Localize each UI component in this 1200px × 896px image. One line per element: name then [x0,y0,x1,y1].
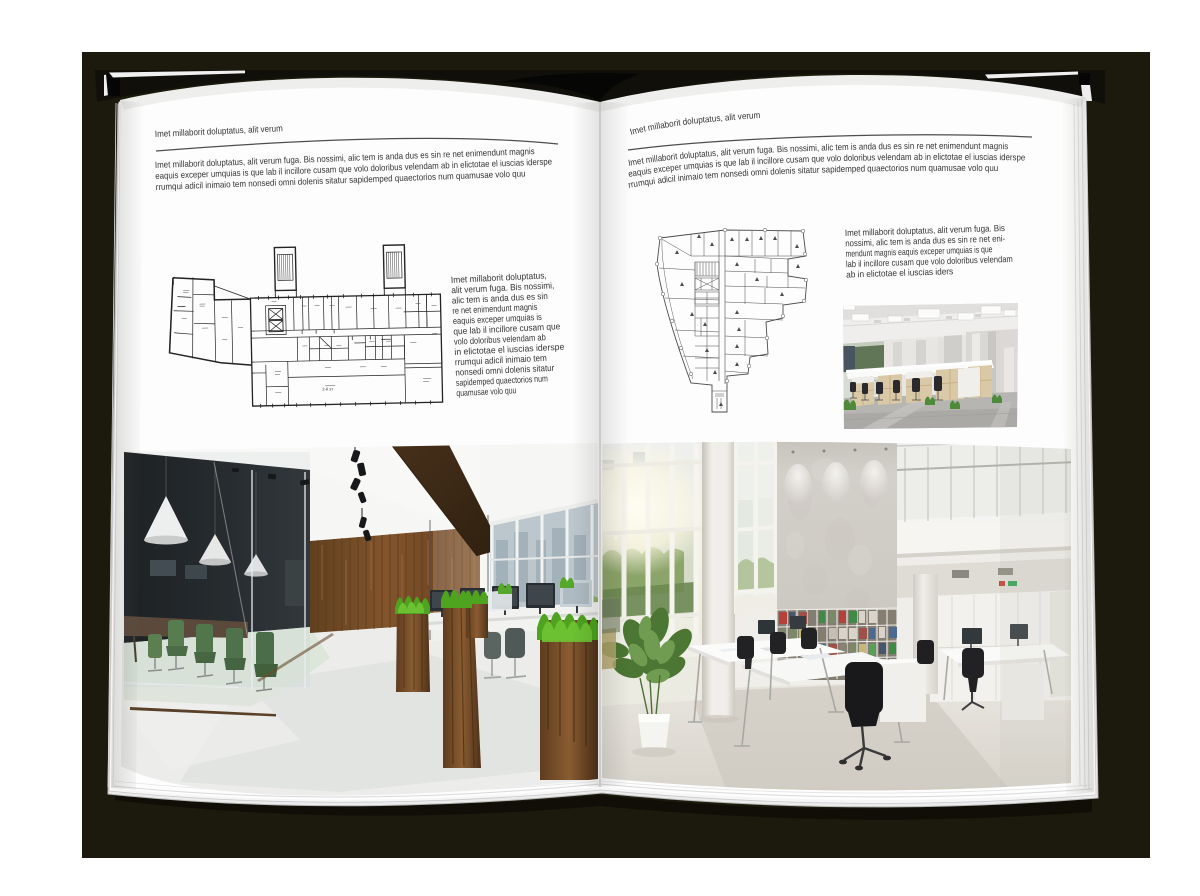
svg-text:2-й эт: 2-й эт [322,386,333,391]
